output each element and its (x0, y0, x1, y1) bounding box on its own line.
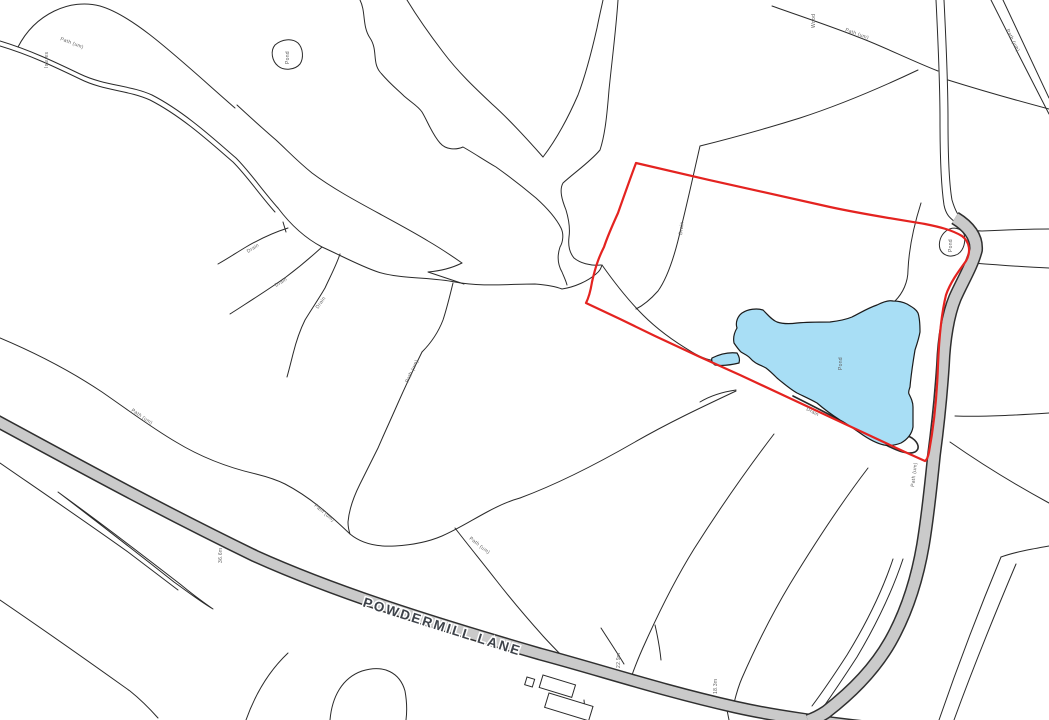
boundary-line (950, 442, 1049, 503)
buildings (525, 675, 593, 720)
stream-line (407, 0, 543, 157)
boundary-line (982, 229, 1049, 231)
boundary-line (954, 564, 1016, 720)
boundary-line (955, 413, 1049, 416)
boundary-line (655, 625, 661, 660)
building-footprint (545, 693, 593, 720)
map-label-path-um-: Path (um) (313, 503, 336, 523)
map-label-path-um-: Path (um) (844, 27, 869, 41)
map-label-path-um-: Path (um) (130, 408, 154, 427)
boundary-line (734, 468, 868, 703)
boundary-line (58, 492, 213, 609)
map-label-pond: Pond (838, 357, 844, 370)
map-label-drain: Drain (246, 242, 261, 254)
building-footprint (525, 677, 535, 687)
map-label-drain: Drain (315, 296, 328, 310)
stream-line (543, 0, 603, 157)
boundary-line (330, 669, 407, 720)
map-label-path-um-: Path (um) (468, 536, 491, 556)
boundary-line (700, 390, 736, 402)
map-label-drain: Drain (274, 276, 289, 288)
boundary-line (0, 463, 178, 590)
secondary-road (808, 218, 976, 720)
boundary-line (237, 105, 462, 263)
boundary-line (895, 203, 921, 301)
path-line (520, 391, 736, 498)
road-name-label: POWDERMILL LANE (361, 595, 523, 659)
map-viewport: POWDERMILL LANEWoodPath (um)Path (um)Pat… (0, 0, 1049, 720)
path-line (0, 338, 285, 484)
boundary-line (422, 283, 453, 352)
boundary-line (973, 263, 1049, 268)
drain-line (287, 254, 340, 377)
boundary-line (602, 265, 719, 361)
map-label-36-6m: 36.6m (218, 548, 224, 563)
path-line (1003, 0, 1049, 98)
map-label-path-um-: Path (um) (59, 36, 84, 50)
map-label-issues: Issues (44, 52, 50, 68)
map-label-18-3m: 18.3m (713, 679, 719, 694)
boundary-line (631, 434, 774, 678)
map-label-22-9m: 22.9m (616, 653, 622, 668)
ponds (272, 40, 965, 446)
boundary-line (246, 653, 288, 720)
map-label-pond: Pond (285, 51, 291, 64)
map-label-wood: Wood (811, 14, 817, 28)
stream-line (360, 0, 567, 285)
stream-line (561, 0, 618, 265)
path-line (285, 484, 520, 546)
track-line (0, 41, 278, 208)
track-line (944, 0, 963, 220)
path-line (772, 6, 938, 71)
boundary-line (939, 557, 1001, 720)
path-line (991, 0, 1049, 114)
map-label-path-um-: Path (um) (404, 359, 420, 384)
boundary-line (0, 600, 158, 718)
track-line (0, 46, 275, 212)
boundary-line (1001, 546, 1049, 557)
drain-line (636, 70, 918, 309)
map-canvas: POWDERMILL LANEWoodPath (um)Path (um)Pat… (0, 0, 1049, 720)
map-label-drain: Drain (678, 221, 686, 235)
building-footprint (539, 675, 575, 697)
drain-line (230, 247, 322, 314)
map-label-path-um-: Path (um) (910, 462, 919, 487)
boundary-line (283, 222, 286, 232)
main-pond (734, 301, 920, 446)
map-label-pond: Pond (948, 239, 954, 252)
